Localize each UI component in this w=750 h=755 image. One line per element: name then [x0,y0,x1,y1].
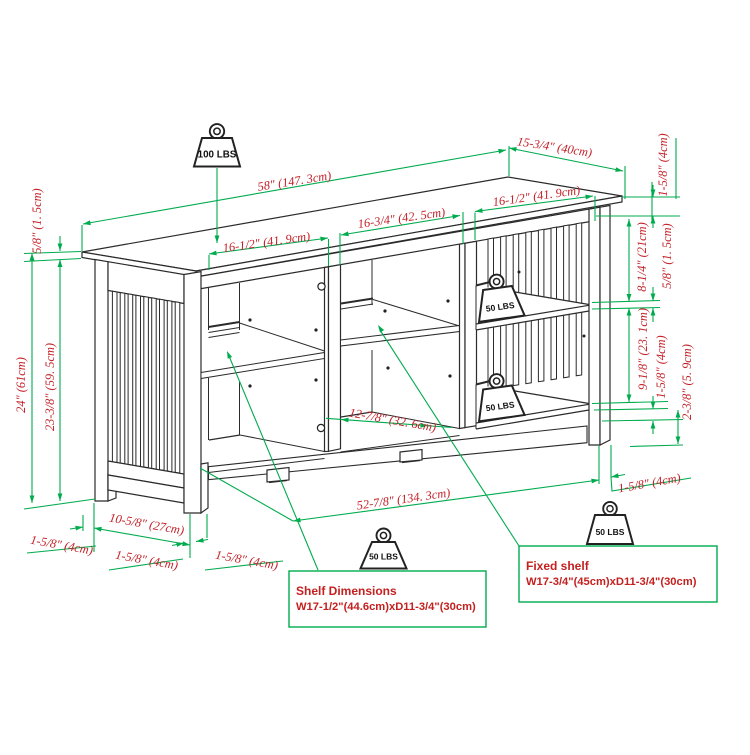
svg-text:100 LBS: 100 LBS [198,150,237,161]
svg-text:8-1/4″ (21cm): 8-1/4″ (21cm) [635,222,649,292]
svg-text:24″ (61cm): 24″ (61cm) [14,357,28,413]
svg-text:9-1/8″ (23. 1cm): 9-1/8″ (23. 1cm) [636,308,650,390]
svg-text:W17-1/2"(44.6cm)xD11-3/4"(30cm: W17-1/2"(44.6cm)xD11-3/4"(30cm) [296,601,476,613]
svg-text:50 LBS: 50 LBS [596,527,625,537]
svg-text:5/8″ (1. 5cm): 5/8″ (1. 5cm) [660,223,674,288]
svg-text:1-5/8″ (4cm): 1-5/8″ (4cm) [654,335,668,398]
svg-text:1-5/8″ (4cm): 1-5/8″ (4cm) [656,133,670,196]
svg-text:23-3/8″ (59. 5cm): 23-3/8″ (59. 5cm) [43,343,57,431]
svg-text:W17-3/4"(45cm)xD11-3/4"(30cm): W17-3/4"(45cm)xD11-3/4"(30cm) [526,576,697,588]
svg-text:5/8″ (1. 5cm): 5/8″ (1. 5cm) [30,188,44,253]
svg-text:Fixed shelf: Fixed shelf [526,559,590,573]
svg-text:2-3/8″ (5. 9cm): 2-3/8″ (5. 9cm) [680,344,694,420]
svg-text:Shelf Dimensions: Shelf Dimensions [296,584,397,598]
svg-text:50 LBS: 50 LBS [369,552,398,562]
